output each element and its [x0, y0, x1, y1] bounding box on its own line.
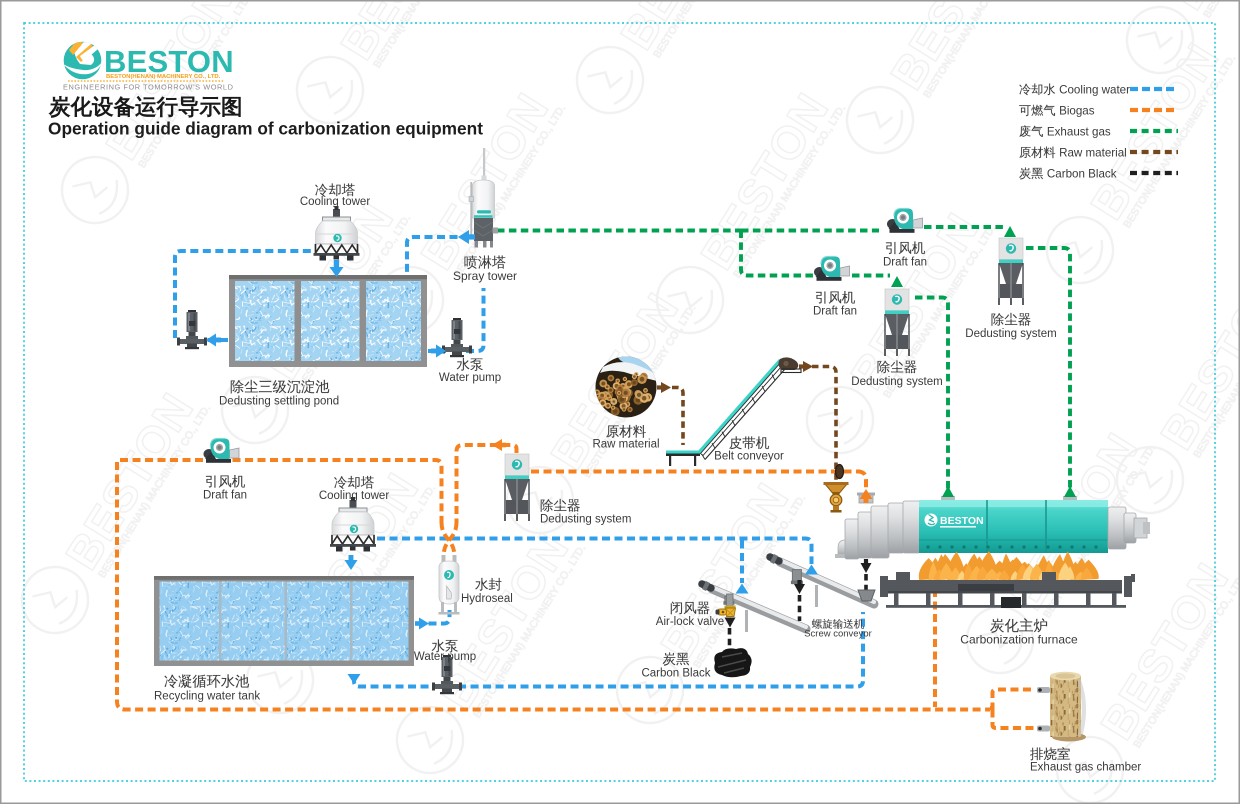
- svg-text:Raw material: Raw material: [1059, 147, 1127, 160]
- svg-text:Water pump: Water pump: [439, 372, 501, 384]
- svg-text:Draft fan: Draft fan: [883, 257, 927, 269]
- svg-text:Dedusting settling pond: Dedusting settling pond: [219, 396, 339, 408]
- svg-text:Recycling water tank: Recycling water tank: [154, 691, 260, 703]
- svg-text:ENGINEERING FOR TOMORROW’S WOR: ENGINEERING FOR TOMORROW’S WORLD: [63, 83, 233, 92]
- svg-text:Cooling tower: Cooling tower: [300, 196, 370, 208]
- svg-text:Carbon Black: Carbon Black: [641, 668, 710, 680]
- svg-text:Draft fan: Draft fan: [203, 490, 247, 502]
- svg-text:Biogas: Biogas: [1059, 105, 1095, 118]
- svg-text:Dedusting system: Dedusting system: [851, 376, 942, 388]
- svg-text:Cooling tower: Cooling tower: [319, 490, 389, 502]
- svg-text:Operation guide diagram of car: Operation guide diagram of carbonization…: [48, 119, 483, 139]
- svg-text:Carbonization furnace: Carbonization furnace: [960, 633, 1078, 647]
- svg-text:Raw material: Raw material: [592, 439, 659, 451]
- svg-text:Screw conveyor: Screw conveyor: [804, 629, 872, 640]
- svg-text:Dedusting system: Dedusting system: [540, 514, 631, 526]
- svg-text:Exhaust gas chamber: Exhaust gas chamber: [1030, 762, 1141, 774]
- svg-text:Air-lock valve: Air-lock valve: [656, 616, 724, 628]
- svg-text:Cooling water: Cooling water: [1059, 84, 1130, 97]
- svg-text:Draft fan: Draft fan: [813, 306, 857, 318]
- svg-text:Exhaust gas: Exhaust gas: [1047, 126, 1111, 139]
- svg-text:BESTON(HENAN) MACHINERY CO., L: BESTON(HENAN) MACHINERY CO., LTD.: [106, 74, 221, 80]
- svg-text:BESTON: BESTON: [940, 515, 984, 527]
- svg-text:Dedusting system: Dedusting system: [965, 328, 1056, 340]
- svg-text:Belt conveyor: Belt conveyor: [714, 451, 784, 463]
- svg-text:Carbon Black: Carbon Black: [1047, 168, 1117, 181]
- svg-text:Hydroseal: Hydroseal: [461, 593, 513, 605]
- svg-text:Water pump: Water pump: [414, 651, 476, 663]
- svg-text:Spray tower: Spray tower: [453, 269, 517, 283]
